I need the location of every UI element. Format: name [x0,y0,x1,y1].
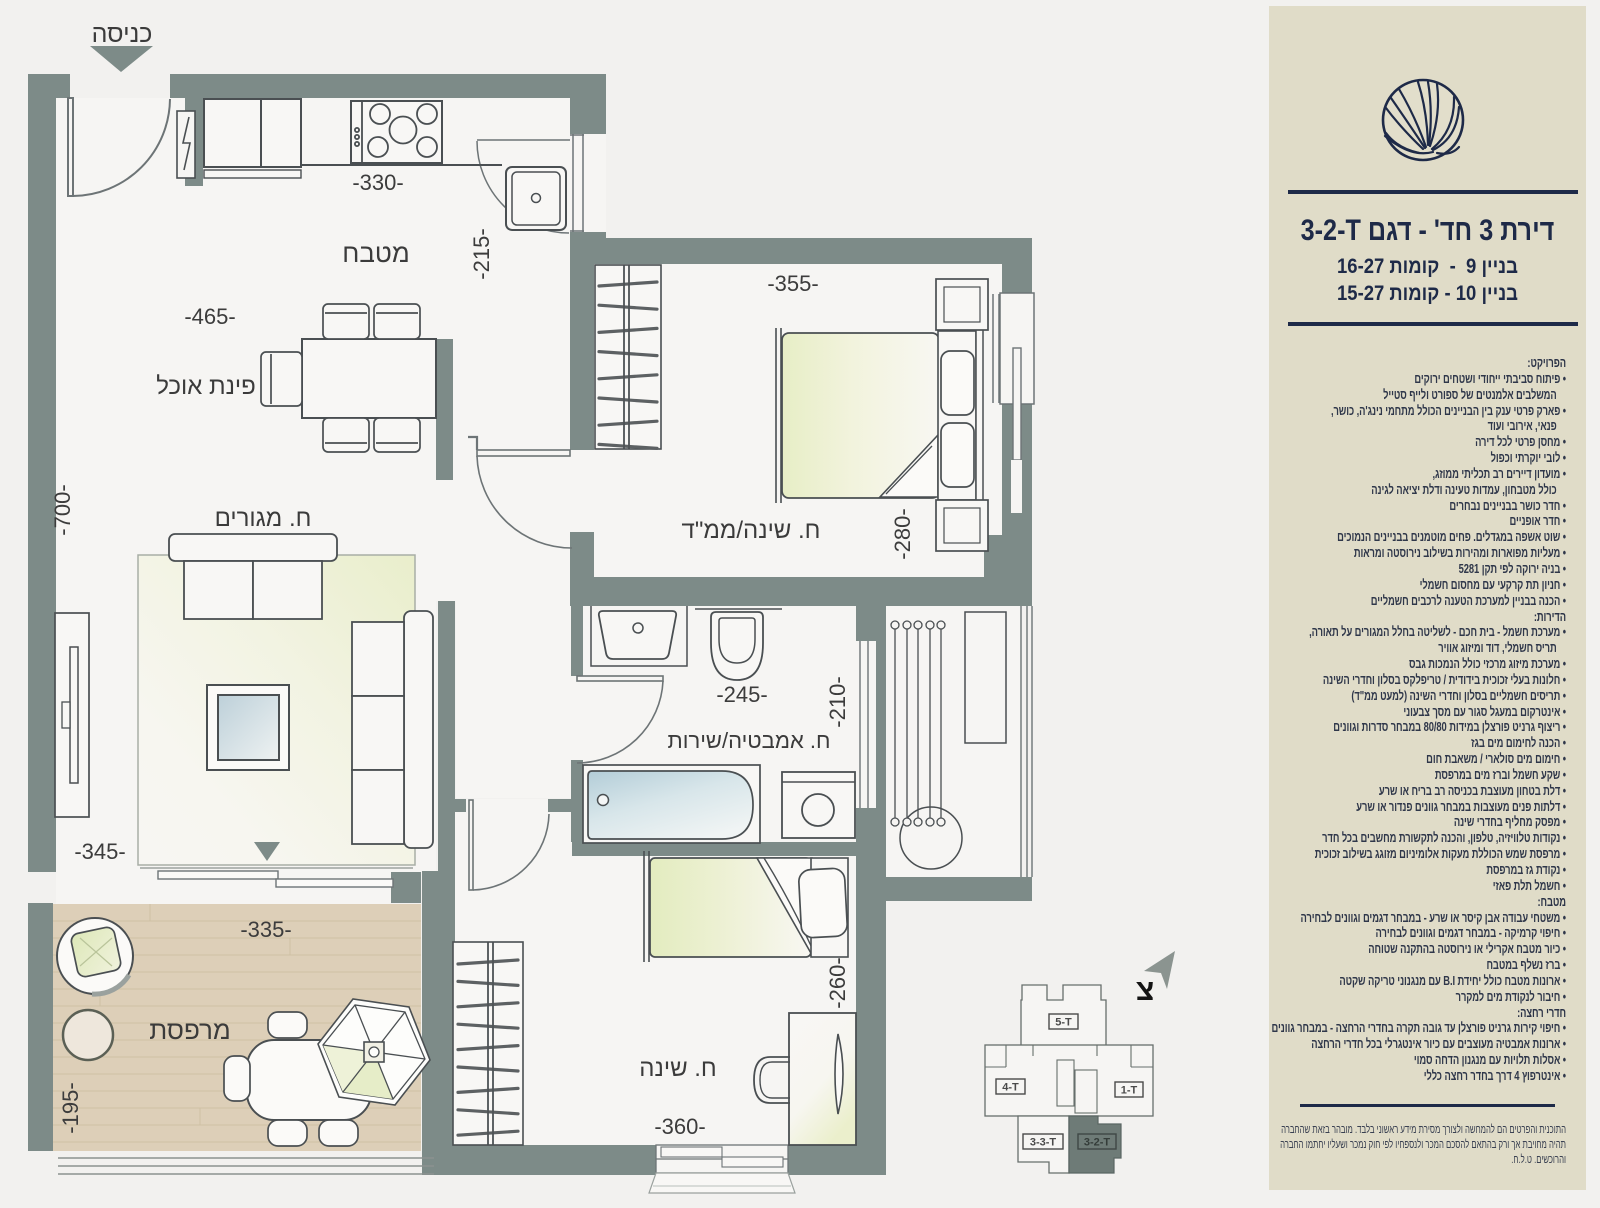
svg-text:ח. שינה: ח. שינה [639,1055,716,1082]
svg-text:-210-: -210- [825,676,850,727]
svg-text:ח. שינה/ממ"ד: ח. שינה/ממ"ד [682,517,821,544]
svg-text:-280-: -280- [890,508,915,559]
svg-text:ח. מגורים: ח. מגורים [215,505,312,532]
svg-text:4-T: 4-T [1002,1082,1019,1094]
svg-text:-215-: -215- [469,228,494,279]
svg-text:מטבח: מטבח [342,238,410,268]
svg-text:1-T: 1-T [1121,1085,1138,1097]
svg-text:-465-: -465- [184,304,235,329]
svg-text:כניסה: כניסה [92,20,153,48]
svg-text:פינת אוכל: פינת אוכל [156,373,256,400]
svg-text:-355-: -355- [767,271,818,296]
svg-text:-260-: -260- [825,957,850,1008]
svg-text:-335-: -335- [240,917,291,942]
svg-text:3-3-T: 3-3-T [1030,1137,1057,1149]
svg-text:צ: צ [1136,974,1154,1007]
svg-text:5-T: 5-T [1055,1017,1072,1029]
svg-text:-345-: -345- [74,839,125,864]
svg-text:-195-: -195- [58,1082,83,1133]
svg-text:-700-: -700- [50,484,75,535]
svg-text:-360-: -360- [654,1114,705,1139]
svg-text:-245-: -245- [716,682,767,707]
svg-text:-330-: -330- [352,170,403,195]
svg-text:ח. אמבטיה/שירות: ח. אמבטיה/שירות [668,728,831,753]
svg-text:3-2-T: 3-2-T [1084,1137,1111,1149]
svg-text:מרפסת: מרפסת [149,1015,231,1045]
